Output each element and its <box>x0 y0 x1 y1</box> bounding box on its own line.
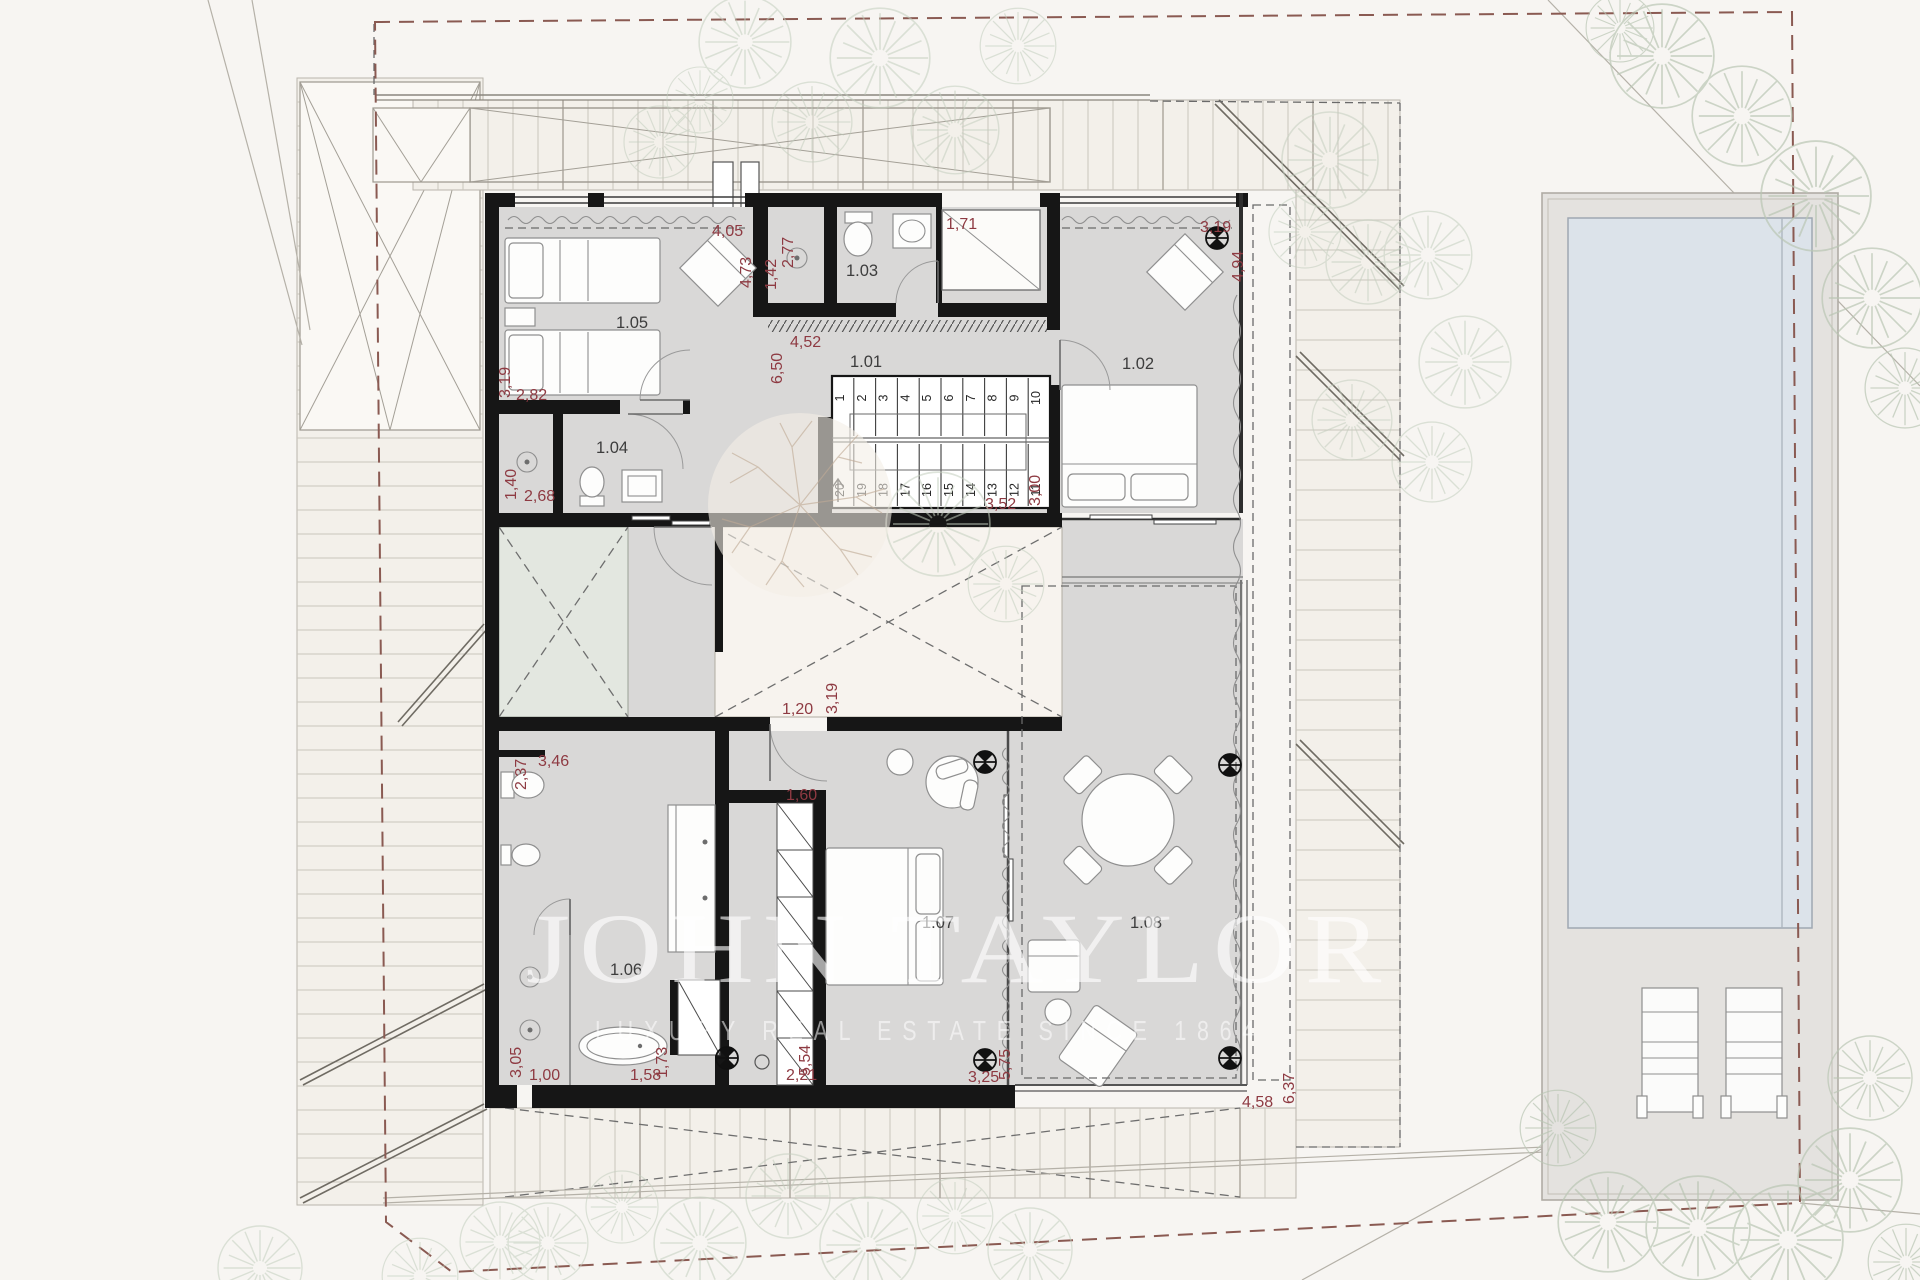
sun-lounger <box>1721 988 1787 1118</box>
dim-label: 1,60 <box>786 787 817 804</box>
dim-label: 1,42 <box>763 259 780 290</box>
room-label-103: 1.03 <box>846 262 878 280</box>
dim-label: 4,05 <box>712 223 743 240</box>
sink <box>622 470 662 502</box>
svg-text:6: 6 <box>942 394 956 401</box>
dim-label: 3,00 <box>1027 475 1044 506</box>
bidet <box>501 844 540 866</box>
dim-label: 6,50 <box>769 353 786 384</box>
dim-label: 1,71 <box>946 216 977 233</box>
watermark-tagline: LUXURY REAL ESTATE SINCE 1864 <box>595 1015 1265 1046</box>
bed-double <box>1062 385 1197 507</box>
dim-label: 2,82 <box>516 387 547 404</box>
left-deck-band <box>297 78 488 1205</box>
svg-text:5: 5 <box>920 394 934 401</box>
svg-text:7: 7 <box>964 394 978 401</box>
watermark: JOHN TAYLOR LUXURY REAL ESTATE SINCE 186… <box>526 893 1391 1046</box>
dim-label: 3,19 <box>497 367 514 398</box>
pool-water <box>1568 218 1812 928</box>
dim-label: 1,20 <box>782 701 813 718</box>
dim-label: 4,58 <box>1242 1094 1273 1111</box>
room-label-105: 1.05 <box>616 314 648 332</box>
dim-label: 4,73 <box>738 257 755 288</box>
dim-label: 5,75 <box>997 1049 1014 1080</box>
room-label-102: 1.02 <box>1122 355 1154 373</box>
pool-area <box>1542 193 1838 1200</box>
dim-label: 1,00 <box>529 1067 560 1084</box>
dim-label: 2,77 <box>780 237 797 268</box>
dining-table <box>1062 754 1194 886</box>
room-label-101: 1.01 <box>850 353 882 371</box>
courtyard-tree <box>708 413 892 597</box>
svg-text:12: 12 <box>1007 483 1021 497</box>
svg-text:13: 13 <box>986 483 1000 497</box>
svg-text:4: 4 <box>898 394 912 401</box>
dim-label: 1,40 <box>503 469 520 500</box>
bottom-deck-band <box>490 1108 1296 1198</box>
svg-text:17: 17 <box>898 483 912 497</box>
dim-label: 3,19 <box>1200 219 1231 236</box>
dim-label: 3,19 <box>824 683 841 714</box>
dim-label: 4,52 <box>790 334 821 351</box>
svg-text:9: 9 <box>1007 394 1021 401</box>
dim-label: 3,46 <box>538 753 569 770</box>
room-label-104: 1.04 <box>596 439 628 457</box>
bed-single <box>505 238 660 303</box>
toilet <box>580 467 604 506</box>
dim-label: 3,25 <box>968 1069 999 1086</box>
toilet <box>844 212 872 256</box>
svg-text:1: 1 <box>833 394 847 401</box>
sun-lounger <box>1637 988 1703 1118</box>
dim-label: 2,68 <box>524 488 555 505</box>
bed-single <box>505 330 660 395</box>
dim-label: 2,37 <box>513 759 530 790</box>
svg-text:10: 10 <box>1029 391 1043 405</box>
watermark-brand: JOHN TAYLOR <box>526 893 1391 1004</box>
sink <box>893 214 931 248</box>
svg-text:8: 8 <box>986 394 1000 401</box>
dim-label: 6,37 <box>1281 1073 1298 1104</box>
dim-label: 4,94 <box>1230 251 1247 282</box>
nightstand <box>505 308 535 326</box>
side-table <box>887 749 913 775</box>
floor-plan-drawing: 1 2 3 4 5 6 7 8 9 10 20 19 18 17 16 15 1… <box>0 0 1920 1280</box>
floor-plan-page: 1 2 3 4 5 6 7 8 9 10 20 19 18 17 16 15 1… <box>0 0 1920 1280</box>
svg-text:3: 3 <box>877 394 891 401</box>
dim-label: 1,73 <box>654 1047 671 1078</box>
dim-label: 3,52 <box>985 496 1016 513</box>
svg-text:15: 15 <box>942 483 956 497</box>
dim-label: 3,05 <box>508 1047 525 1078</box>
insulation-hatch <box>768 320 1047 332</box>
svg-text:2: 2 <box>855 394 869 401</box>
dim-label: 5,54 <box>797 1045 814 1076</box>
